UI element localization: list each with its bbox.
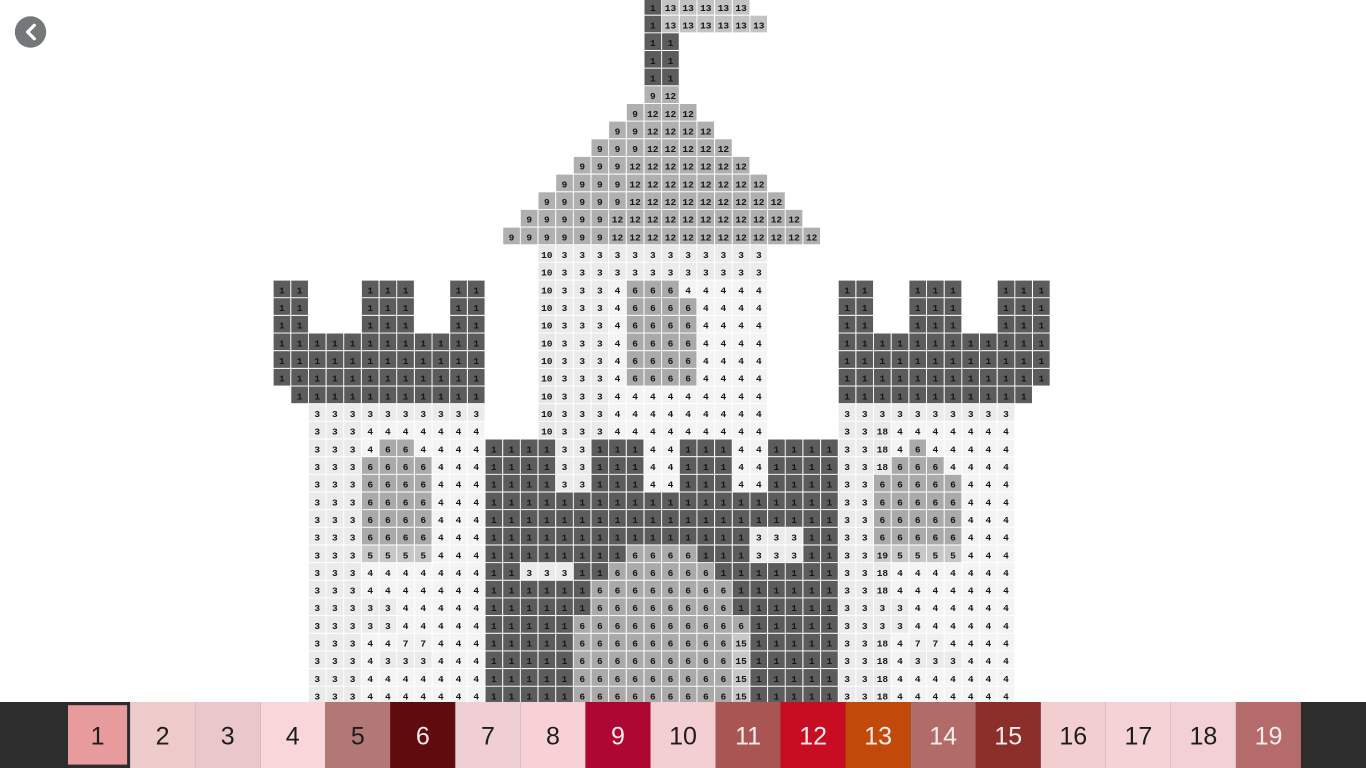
svg-text:3: 3 xyxy=(562,303,568,314)
svg-text:1: 1 xyxy=(985,356,991,367)
svg-text:1: 1 xyxy=(950,321,956,332)
svg-text:6: 6 xyxy=(897,515,903,526)
svg-text:6: 6 xyxy=(950,497,956,508)
svg-text:1: 1 xyxy=(385,338,391,349)
svg-text:3: 3 xyxy=(332,692,338,703)
svg-text:3: 3 xyxy=(314,656,320,667)
svg-text:3: 3 xyxy=(350,568,356,579)
svg-text:1: 1 xyxy=(1021,356,1027,367)
svg-text:4: 4 xyxy=(968,568,974,579)
svg-text:4: 4 xyxy=(438,444,444,455)
svg-text:5: 5 xyxy=(351,723,365,751)
svg-text:4: 4 xyxy=(915,427,921,438)
svg-text:3: 3 xyxy=(862,603,868,614)
svg-text:6: 6 xyxy=(597,603,603,614)
svg-text:4: 4 xyxy=(756,338,762,349)
svg-text:9: 9 xyxy=(526,215,532,226)
svg-text:1: 1 xyxy=(297,391,303,402)
svg-text:1: 1 xyxy=(526,515,532,526)
svg-text:5: 5 xyxy=(403,550,409,561)
svg-text:4: 4 xyxy=(456,692,462,703)
svg-text:4: 4 xyxy=(985,621,991,632)
svg-text:5: 5 xyxy=(385,550,391,561)
svg-text:12: 12 xyxy=(700,126,712,137)
svg-text:10: 10 xyxy=(541,391,553,402)
svg-text:3: 3 xyxy=(615,268,621,279)
svg-text:3: 3 xyxy=(562,356,568,367)
svg-text:3: 3 xyxy=(314,515,320,526)
svg-text:9: 9 xyxy=(632,126,638,137)
svg-text:13: 13 xyxy=(682,21,694,32)
svg-text:1: 1 xyxy=(968,338,974,349)
svg-text:1: 1 xyxy=(491,550,497,561)
svg-text:9: 9 xyxy=(509,232,515,243)
svg-text:3: 3 xyxy=(562,268,568,279)
svg-text:1: 1 xyxy=(491,444,497,455)
svg-text:1: 1 xyxy=(562,550,568,561)
svg-text:4: 4 xyxy=(933,586,939,597)
svg-text:4: 4 xyxy=(897,639,903,650)
svg-text:6: 6 xyxy=(632,356,638,367)
svg-text:4: 4 xyxy=(473,497,479,508)
svg-text:3: 3 xyxy=(915,656,921,667)
svg-text:10: 10 xyxy=(541,338,553,349)
svg-text:6: 6 xyxy=(597,621,603,632)
svg-text:1: 1 xyxy=(650,38,656,49)
svg-text:4: 4 xyxy=(703,303,709,314)
svg-text:4: 4 xyxy=(668,409,674,420)
svg-text:1: 1 xyxy=(350,374,356,385)
svg-text:1: 1 xyxy=(897,391,903,402)
svg-text:12: 12 xyxy=(665,109,677,120)
svg-text:12: 12 xyxy=(665,232,677,243)
svg-text:12: 12 xyxy=(753,232,765,243)
svg-text:1: 1 xyxy=(615,515,621,526)
svg-text:1: 1 xyxy=(791,621,797,632)
svg-text:3: 3 xyxy=(597,338,603,349)
svg-text:1: 1 xyxy=(668,497,674,508)
svg-text:12: 12 xyxy=(753,215,765,226)
svg-text:1: 1 xyxy=(844,356,850,367)
svg-text:1: 1 xyxy=(738,568,744,579)
svg-text:1: 1 xyxy=(367,356,373,367)
svg-text:6: 6 xyxy=(950,480,956,491)
svg-text:6: 6 xyxy=(632,568,638,579)
svg-text:4: 4 xyxy=(985,568,991,579)
svg-text:18: 18 xyxy=(1189,723,1217,751)
svg-text:6: 6 xyxy=(385,444,391,455)
svg-text:4: 4 xyxy=(756,374,762,385)
svg-text:6: 6 xyxy=(668,285,674,296)
svg-text:3: 3 xyxy=(367,603,373,614)
svg-text:1: 1 xyxy=(774,568,780,579)
svg-text:4: 4 xyxy=(615,409,621,420)
svg-text:6: 6 xyxy=(385,515,391,526)
svg-text:4: 4 xyxy=(756,356,762,367)
svg-text:4: 4 xyxy=(968,533,974,544)
svg-text:1: 1 xyxy=(756,586,762,597)
svg-text:12: 12 xyxy=(629,162,641,173)
svg-text:6: 6 xyxy=(420,515,426,526)
svg-text:4: 4 xyxy=(1003,639,1009,650)
svg-text:10: 10 xyxy=(541,356,553,367)
svg-text:1: 1 xyxy=(367,303,373,314)
svg-text:6: 6 xyxy=(579,692,585,703)
svg-text:1: 1 xyxy=(403,374,409,385)
svg-text:4: 4 xyxy=(615,427,621,438)
svg-text:3: 3 xyxy=(350,692,356,703)
svg-text:1: 1 xyxy=(915,356,921,367)
svg-text:14: 14 xyxy=(929,723,957,751)
svg-text:4: 4 xyxy=(756,321,762,332)
svg-text:4: 4 xyxy=(438,533,444,544)
svg-text:1: 1 xyxy=(933,285,939,296)
svg-text:1: 1 xyxy=(1003,356,1009,367)
svg-text:1: 1 xyxy=(756,621,762,632)
svg-text:3: 3 xyxy=(314,480,320,491)
svg-text:1: 1 xyxy=(668,56,674,67)
svg-text:1: 1 xyxy=(685,515,691,526)
svg-text:1: 1 xyxy=(491,621,497,632)
svg-text:3: 3 xyxy=(579,391,585,402)
svg-text:3: 3 xyxy=(367,621,373,632)
svg-text:6: 6 xyxy=(721,586,727,597)
svg-text:3: 3 xyxy=(350,515,356,526)
svg-text:4: 4 xyxy=(968,427,974,438)
svg-text:1: 1 xyxy=(403,391,409,402)
svg-text:1: 1 xyxy=(526,674,532,685)
svg-text:4: 4 xyxy=(1003,621,1009,632)
svg-text:1: 1 xyxy=(756,515,762,526)
svg-text:3: 3 xyxy=(844,674,850,685)
svg-text:3: 3 xyxy=(791,550,797,561)
svg-text:4: 4 xyxy=(650,462,656,473)
svg-text:1: 1 xyxy=(597,533,603,544)
svg-text:1: 1 xyxy=(880,374,886,385)
svg-text:1: 1 xyxy=(420,356,426,367)
svg-text:1: 1 xyxy=(297,303,303,314)
svg-text:4: 4 xyxy=(650,480,656,491)
svg-text:3: 3 xyxy=(756,250,762,261)
svg-text:4: 4 xyxy=(456,515,462,526)
svg-text:3: 3 xyxy=(844,603,850,614)
svg-text:1: 1 xyxy=(491,497,497,508)
svg-text:4: 4 xyxy=(985,497,991,508)
svg-text:1: 1 xyxy=(827,639,833,650)
svg-text:9: 9 xyxy=(562,179,568,190)
svg-text:9: 9 xyxy=(597,144,603,155)
svg-text:3: 3 xyxy=(350,497,356,508)
svg-text:6: 6 xyxy=(650,621,656,632)
svg-text:4: 4 xyxy=(985,674,991,685)
svg-text:3: 3 xyxy=(350,603,356,614)
svg-text:6: 6 xyxy=(915,444,921,455)
svg-text:6: 6 xyxy=(703,621,709,632)
svg-text:1: 1 xyxy=(791,692,797,703)
svg-text:4: 4 xyxy=(403,586,409,597)
svg-text:4: 4 xyxy=(473,639,479,650)
svg-text:1: 1 xyxy=(809,497,815,508)
svg-text:1: 1 xyxy=(544,586,550,597)
svg-text:9: 9 xyxy=(579,162,585,173)
svg-text:3: 3 xyxy=(456,409,462,420)
svg-text:6: 6 xyxy=(721,603,727,614)
svg-text:3: 3 xyxy=(562,444,568,455)
svg-text:3: 3 xyxy=(562,338,568,349)
svg-text:6: 6 xyxy=(579,674,585,685)
svg-text:1: 1 xyxy=(985,338,991,349)
svg-text:6: 6 xyxy=(615,586,621,597)
svg-text:1: 1 xyxy=(350,356,356,367)
svg-text:18: 18 xyxy=(877,656,889,667)
svg-text:1: 1 xyxy=(880,356,886,367)
svg-text:3: 3 xyxy=(350,409,356,420)
svg-text:7: 7 xyxy=(481,723,495,751)
svg-text:6: 6 xyxy=(615,656,621,667)
svg-text:4: 4 xyxy=(897,586,903,597)
svg-text:4: 4 xyxy=(438,427,444,438)
svg-text:1: 1 xyxy=(685,533,691,544)
svg-text:4: 4 xyxy=(721,321,727,332)
svg-text:4: 4 xyxy=(897,427,903,438)
svg-text:17: 17 xyxy=(1124,723,1152,751)
svg-text:4: 4 xyxy=(756,444,762,455)
svg-text:1: 1 xyxy=(915,391,921,402)
svg-text:1: 1 xyxy=(385,285,391,296)
svg-text:4: 4 xyxy=(738,285,744,296)
svg-text:1: 1 xyxy=(774,444,780,455)
svg-text:6: 6 xyxy=(703,568,709,579)
svg-text:1: 1 xyxy=(579,497,585,508)
svg-text:1: 1 xyxy=(403,338,409,349)
svg-text:1: 1 xyxy=(950,391,956,402)
svg-text:3: 3 xyxy=(314,462,320,473)
svg-text:4: 4 xyxy=(738,356,744,367)
svg-text:1: 1 xyxy=(1003,285,1009,296)
svg-text:3: 3 xyxy=(579,462,585,473)
svg-text:1: 1 xyxy=(491,603,497,614)
svg-text:6: 6 xyxy=(721,621,727,632)
svg-text:1: 1 xyxy=(473,303,479,314)
svg-text:4: 4 xyxy=(473,656,479,667)
svg-text:1: 1 xyxy=(403,356,409,367)
svg-text:4: 4 xyxy=(950,621,956,632)
svg-text:1: 1 xyxy=(1003,374,1009,385)
svg-text:1: 1 xyxy=(367,321,373,332)
svg-text:6: 6 xyxy=(579,656,585,667)
svg-text:4: 4 xyxy=(756,285,762,296)
svg-text:1: 1 xyxy=(456,285,462,296)
svg-text:2: 2 xyxy=(156,723,170,751)
svg-text:3: 3 xyxy=(332,462,338,473)
svg-text:3: 3 xyxy=(562,568,568,579)
svg-text:4: 4 xyxy=(738,427,744,438)
svg-text:1: 1 xyxy=(862,391,868,402)
svg-text:1: 1 xyxy=(985,374,991,385)
svg-text:4: 4 xyxy=(473,568,479,579)
svg-text:4: 4 xyxy=(985,586,991,597)
svg-text:4: 4 xyxy=(933,692,939,703)
svg-text:1: 1 xyxy=(562,497,568,508)
svg-text:6: 6 xyxy=(933,462,939,473)
svg-text:3: 3 xyxy=(685,250,691,261)
svg-text:4: 4 xyxy=(438,568,444,579)
svg-text:6: 6 xyxy=(668,639,674,650)
svg-text:1: 1 xyxy=(579,515,585,526)
svg-text:4: 4 xyxy=(438,639,444,650)
svg-text:1: 1 xyxy=(756,639,762,650)
svg-text:3: 3 xyxy=(403,409,409,420)
svg-text:1: 1 xyxy=(526,692,532,703)
svg-text:4: 4 xyxy=(286,723,300,751)
svg-text:4: 4 xyxy=(756,427,762,438)
svg-text:3: 3 xyxy=(562,250,568,261)
svg-text:4: 4 xyxy=(968,480,974,491)
svg-text:1: 1 xyxy=(862,285,868,296)
svg-text:4: 4 xyxy=(473,603,479,614)
svg-text:3: 3 xyxy=(844,444,850,455)
svg-text:6: 6 xyxy=(632,656,638,667)
svg-text:6: 6 xyxy=(403,533,409,544)
svg-text:6: 6 xyxy=(632,321,638,332)
svg-text:13: 13 xyxy=(665,3,677,14)
svg-text:12: 12 xyxy=(647,197,659,208)
svg-text:4: 4 xyxy=(915,586,921,597)
svg-text:4: 4 xyxy=(438,621,444,632)
svg-text:3: 3 xyxy=(473,409,479,420)
svg-text:4: 4 xyxy=(438,480,444,491)
svg-text:1: 1 xyxy=(685,444,691,455)
svg-text:1: 1 xyxy=(279,356,285,367)
svg-text:3: 3 xyxy=(332,550,338,561)
svg-text:6: 6 xyxy=(721,656,727,667)
svg-text:3: 3 xyxy=(915,409,921,420)
svg-text:1: 1 xyxy=(473,374,479,385)
svg-text:6: 6 xyxy=(615,568,621,579)
svg-text:3: 3 xyxy=(880,409,886,420)
svg-text:6: 6 xyxy=(915,480,921,491)
svg-text:12: 12 xyxy=(771,197,783,208)
svg-text:1: 1 xyxy=(827,674,833,685)
svg-text:12: 12 xyxy=(700,179,712,190)
svg-text:3: 3 xyxy=(314,603,320,614)
svg-text:9: 9 xyxy=(544,232,550,243)
svg-text:1: 1 xyxy=(438,338,444,349)
svg-text:1: 1 xyxy=(1021,391,1027,402)
svg-text:3: 3 xyxy=(668,250,674,261)
svg-text:4: 4 xyxy=(933,603,939,614)
svg-text:1: 1 xyxy=(632,462,638,473)
svg-text:1: 1 xyxy=(562,674,568,685)
svg-text:6: 6 xyxy=(721,674,727,685)
svg-text:4: 4 xyxy=(915,568,921,579)
svg-text:1: 1 xyxy=(509,444,515,455)
svg-text:1: 1 xyxy=(1003,338,1009,349)
svg-text:6: 6 xyxy=(721,639,727,650)
svg-text:1: 1 xyxy=(791,497,797,508)
svg-text:4: 4 xyxy=(438,692,444,703)
svg-text:1: 1 xyxy=(297,356,303,367)
svg-text:6: 6 xyxy=(685,303,691,314)
svg-text:3: 3 xyxy=(350,621,356,632)
svg-text:4: 4 xyxy=(897,692,903,703)
svg-text:6: 6 xyxy=(650,303,656,314)
svg-text:1: 1 xyxy=(403,285,409,296)
svg-text:4: 4 xyxy=(403,568,409,579)
svg-text:3: 3 xyxy=(562,391,568,402)
svg-text:1: 1 xyxy=(526,533,532,544)
svg-text:4: 4 xyxy=(985,444,991,455)
svg-text:1: 1 xyxy=(491,568,497,579)
svg-text:1: 1 xyxy=(844,374,850,385)
svg-text:1: 1 xyxy=(297,285,303,296)
svg-text:1: 1 xyxy=(332,391,338,402)
svg-text:3: 3 xyxy=(703,250,709,261)
svg-text:6: 6 xyxy=(403,462,409,473)
svg-text:4: 4 xyxy=(738,321,744,332)
svg-text:4: 4 xyxy=(950,639,956,650)
svg-text:3: 3 xyxy=(1003,409,1009,420)
svg-text:3: 3 xyxy=(562,374,568,385)
svg-text:3: 3 xyxy=(791,533,797,544)
svg-text:9: 9 xyxy=(579,215,585,226)
svg-text:1: 1 xyxy=(915,374,921,385)
svg-text:3: 3 xyxy=(332,497,338,508)
svg-text:12: 12 xyxy=(647,215,659,226)
svg-text:6: 6 xyxy=(403,497,409,508)
svg-text:12: 12 xyxy=(647,179,659,190)
svg-text:3: 3 xyxy=(332,444,338,455)
svg-text:3: 3 xyxy=(350,656,356,667)
svg-text:12: 12 xyxy=(718,197,730,208)
svg-text:1: 1 xyxy=(703,515,709,526)
svg-text:18: 18 xyxy=(877,568,889,579)
svg-text:3: 3 xyxy=(632,250,638,261)
svg-text:6: 6 xyxy=(933,497,939,508)
svg-text:1: 1 xyxy=(544,550,550,561)
svg-text:4: 4 xyxy=(438,462,444,473)
svg-text:1: 1 xyxy=(756,656,762,667)
svg-text:6: 6 xyxy=(650,321,656,332)
svg-text:3: 3 xyxy=(862,568,868,579)
svg-text:1: 1 xyxy=(1003,303,1009,314)
svg-text:1: 1 xyxy=(721,515,727,526)
svg-text:1: 1 xyxy=(668,515,674,526)
svg-text:4: 4 xyxy=(756,391,762,402)
svg-text:12: 12 xyxy=(665,197,677,208)
svg-text:6: 6 xyxy=(685,639,691,650)
svg-text:3: 3 xyxy=(438,409,444,420)
svg-text:1: 1 xyxy=(809,444,815,455)
svg-text:1: 1 xyxy=(579,550,585,561)
svg-text:1: 1 xyxy=(774,462,780,473)
svg-text:4: 4 xyxy=(1003,550,1009,561)
svg-text:12: 12 xyxy=(700,197,712,208)
svg-text:4: 4 xyxy=(420,427,426,438)
svg-text:1: 1 xyxy=(827,462,833,473)
svg-text:1: 1 xyxy=(491,480,497,491)
svg-text:6: 6 xyxy=(632,374,638,385)
svg-text:4: 4 xyxy=(367,692,373,703)
svg-text:1: 1 xyxy=(473,356,479,367)
svg-text:4: 4 xyxy=(1003,497,1009,508)
svg-text:3: 3 xyxy=(332,621,338,632)
svg-text:10: 10 xyxy=(541,374,553,385)
svg-text:1: 1 xyxy=(791,639,797,650)
svg-text:6: 6 xyxy=(367,462,373,473)
svg-text:1: 1 xyxy=(562,586,568,597)
svg-text:4: 4 xyxy=(615,356,621,367)
